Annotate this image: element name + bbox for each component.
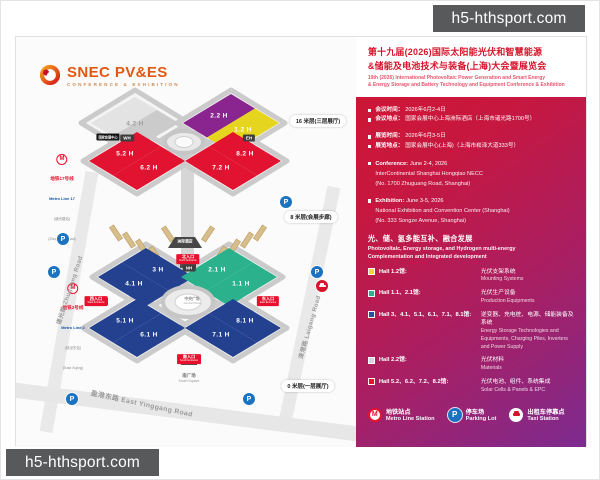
legend-desc-cn: 光伏电池、组件、系统集成 [481, 378, 551, 387]
entrance-en: South Entrance [180, 360, 198, 363]
taxi-icon [316, 280, 328, 292]
metro-icon: M [57, 154, 68, 165]
square-bullet-icon [368, 145, 372, 149]
exhibition-time-row: 展览时间： 2026年6月3-5日 [368, 132, 574, 142]
facility-taxi: 出租车停靠点 Taxi Station [509, 407, 564, 422]
east-entrance-tag: 东入口 East Entrance [257, 296, 279, 306]
legend-desc-en: Solar Cells & Panels & EPC [481, 387, 551, 395]
info-label: Conference: [375, 159, 408, 169]
parking-icon: P [448, 408, 462, 422]
info-address-line: (No. 1700 Zhuguang Road, Shanghai) [375, 179, 574, 189]
hall-label: 8.1 H [236, 318, 254, 325]
legend-label: Hall 1.2馆: [379, 268, 407, 276]
hall-label: 2.2 H [210, 113, 228, 120]
info-panel: 第十九届(2026)国际太阳能光伏和智慧能源 &储能及电池技术与装备(上海)大会… [356, 37, 586, 447]
parking-icon: P [311, 266, 323, 278]
legend-row-hall-5-2-etc: Hall 5.2、6.2、7.2、8.2馆: 光伏电池、组件、系统集成 Sola… [368, 378, 574, 394]
facility-en: Taxi Station [527, 416, 564, 422]
metro-station-cn: (诸光路站) [54, 217, 70, 221]
metro-line-en: Metro Line 2 [61, 325, 85, 330]
parking-icon: P [57, 233, 69, 245]
facility-cn: 地铁站点 [386, 407, 435, 416]
legend-desc-cn: 逆变器、充电桩、电源、储能装备及系统 [481, 311, 574, 328]
page: h5-hthsport.com h5-hthsport.com SNEC PV&… [0, 0, 600, 480]
hall-label: 6.2 H [140, 165, 158, 172]
necc-label: 国家会展中心 [96, 134, 119, 141]
hall-label: 3 H [152, 267, 163, 274]
hall-label: 1.2 H [234, 127, 252, 134]
south-square-en: South Square [179, 379, 200, 383]
hall-label: 6.1 H [140, 332, 158, 339]
info-value: June 3-5, 2026 [406, 196, 443, 206]
car-glyph [319, 285, 326, 288]
hall-label: 5.1 H [116, 318, 134, 325]
metro-icon: M [368, 408, 382, 422]
hall-label: 5.2 H [116, 151, 134, 158]
floor-label-0m: 0 米层(一层展厅) [281, 380, 334, 392]
info-value: 2026年6月3-5日 [405, 132, 445, 142]
theme-cn: 光、储、氢多能互补、融合发展 [368, 234, 574, 244]
legend-swatch-teal-icon [368, 290, 375, 297]
legend-desc-en: Mounting Systems [481, 276, 524, 284]
parking-icon: P [48, 266, 60, 278]
legend-swatch-blue-icon [368, 311, 375, 318]
legend-swatch-yellow-icon [368, 268, 375, 275]
north-hall-tag: NH [183, 265, 196, 272]
legend-desc-en: Energy Storage Technologies and Equipmen… [481, 328, 574, 351]
floor-label-16m: 16 米层(三层展厅) [290, 115, 346, 127]
north-entrance-tag: 北入口 North Entrance [176, 254, 199, 264]
taxi-icon [509, 408, 523, 422]
legend-swatch-light-icon [368, 357, 375, 364]
west-hall-tag: WH [120, 135, 134, 142]
facility-cn: 出租车停靠点 [527, 407, 564, 416]
legend-label: Hall 2.2馆: [379, 356, 407, 364]
exhibition-en-block: Exhibition: June 3-5, 2026 National Exhi… [368, 196, 574, 226]
facility-en: Parking Lot [466, 416, 497, 422]
info-value: 国家会展中心(上海)（上海市崧泽大道333号） [405, 142, 519, 152]
facility-cn: 停车场 [466, 407, 497, 416]
metro-line-en: Metro Line 17 [49, 196, 75, 201]
conference-time-row: 会议时间： 2026年6月2-4日 [368, 106, 574, 116]
logo-tagline: CONFERENCE & EXHIBITION [67, 82, 180, 87]
legend-label: Hall 5.2、6.2、7.2、8.2馆: [379, 378, 449, 386]
hall-label: 4.2 H [126, 121, 144, 128]
legend-desc-en: Production Equipments [481, 298, 535, 306]
square-bullet-icon [368, 135, 372, 139]
info-label: 展览地点： [375, 142, 403, 152]
info-label: 展览时间： [375, 132, 403, 142]
central-plaza-en: Central Plaza [184, 302, 201, 305]
info-value: 2026年6月2-4日 [405, 106, 445, 116]
south-entrance-tag: 南入口 South Entrance [177, 354, 201, 364]
poster-card: SNEC PV&ES CONFERENCE & EXHIBITION [15, 36, 587, 446]
legend-desc-cn: 光伏生产设备 [481, 289, 535, 298]
square-bullet-icon [368, 199, 372, 203]
hall-label: 2.1 H [208, 267, 226, 274]
metro-station-en: (East Xujing) [63, 366, 83, 370]
parking-icon: P [243, 393, 255, 405]
facility-metro: M 地铁站点 Metro Line Station [368, 407, 435, 422]
parking-icon: P [280, 196, 292, 208]
theme-en-line2: Complementation and Integrated developme… [368, 254, 574, 262]
event-title-cn-line1: 第十九届(2026)国际太阳能光伏和智慧能源 [368, 46, 574, 60]
floor-label-8m: 8 米层(会展步廊) [284, 211, 337, 223]
entrance-en: East Entrance [260, 302, 276, 305]
legend-row-hall-3-etc: Hall 3、4.1、5.1、6.1、7.1、8.1馆: 逆变器、充电桩、电源、… [368, 311, 574, 352]
conference-venue-row: 会议地点： 国家会展中心上海洲际酒店（上海市诸光路1700号） [368, 115, 574, 125]
event-title-en-line1: 19th (2026) International Photovoltaic P… [368, 75, 574, 82]
square-bullet-icon [368, 162, 372, 166]
info-label: 会议时间： [375, 106, 403, 116]
event-title-en-line2: & Energy Storage and Battery Technology … [368, 82, 574, 89]
square-bullet-icon [368, 118, 372, 122]
hall-label: 8.2 H [236, 151, 254, 158]
entrance-en: North Entrance [179, 260, 196, 263]
snec-logo: SNEC PV&ES CONFERENCE & EXHIBITION [38, 63, 180, 87]
watermark-bottom: h5-hthsport.com [6, 449, 159, 476]
east-hall-tag: EH [243, 135, 255, 142]
info-label: Exhibition: [375, 196, 404, 206]
theme-en-line1: Photovoltaic, Energy storage, and Hydrog… [368, 246, 574, 254]
entrance-en: West Entrance [88, 302, 105, 305]
hall-label: 4.1 H [125, 281, 143, 288]
metro-station-cn: (徐泾东站) [65, 346, 81, 350]
metro-line-cn: 地铁17号线 [50, 176, 74, 181]
hall-label: 1.1 H [232, 281, 250, 288]
conference-en-block: Conference: June 2-4, 2026 InterContinen… [368, 159, 574, 189]
south-square-label: 南广场 South Square [179, 373, 200, 383]
legend-row-hall-1-1-2-1: Hall 1.1、2.1馆: 光伏生产设备 Production Equipme… [368, 289, 574, 305]
info-value: 国家会展中心上海洲际酒店（上海市诸光路1700号） [405, 115, 535, 125]
hall-legend: Hall 1.2馆: 光伏支架系统 Mounting Systems Hall … [368, 268, 574, 395]
central-plaza-label: 中央广场 Central Plaza [184, 297, 201, 305]
legend-label: Hall 1.1、2.1馆: [379, 289, 421, 297]
info-label: 会议地点： [375, 115, 403, 125]
legend-label: Hall 3、4.1、5.1、6.1、7.1、8.1馆: [379, 311, 471, 319]
exhibition-venue-row: 展览地点： 国家会展中心(上海)（上海市崧泽大道333号） [368, 142, 574, 152]
legend-row-hall-2-2: Hall 2.2馆: 光伏材料 Materials [368, 356, 574, 372]
square-bullet-icon [368, 109, 372, 113]
facility-parking: P 停车场 Parking Lot [448, 407, 497, 422]
info-venue-line: National Exhibition and Convention Cente… [375, 206, 574, 216]
legend-row-hall-1-2: Hall 1.2馆: 光伏支架系统 Mounting Systems [368, 268, 574, 284]
theme-block: 光、储、氢多能互补、融合发展 Photovoltaic, Energy stor… [368, 234, 574, 262]
logo-name: SNEC PV&ES [67, 64, 180, 81]
car-glyph [513, 413, 520, 416]
parking-icon: P [66, 393, 78, 405]
legend-desc-cn: 光伏支架系统 [481, 268, 524, 277]
facility-en: Metro Line Station [386, 416, 435, 422]
event-title-cn-line2: &储能及电池技术与装备(上海)大会暨展览会 [368, 60, 574, 74]
hall-label: 7.1 H [212, 332, 230, 339]
legend-desc-cn: 光伏材料 [481, 356, 504, 365]
hall-label: 7.2 H [212, 165, 230, 172]
legend-desc-en: Materials [481, 365, 504, 373]
west-entrance-tag: 西入口 West Entrance [85, 296, 108, 306]
legend-swatch-red-icon [368, 378, 375, 385]
panel-header: 第十九届(2026)国际太阳能光伏和智慧能源 &储能及电池技术与装备(上海)大会… [356, 37, 586, 97]
info-address-line: (No. 333 Songze Avenue, Shanghai) [375, 216, 574, 226]
watermark-top: h5-hthsport.com [433, 5, 585, 32]
info-value: June 2-4, 2026 [410, 159, 447, 169]
hotel-label: 洲际酒店 [177, 240, 192, 245]
panel-body: 会议时间： 2026年6月2-4日 会议地点： 国家会展中心上海洲际酒店（上海市… [356, 97, 586, 423]
facilities-legend: M 地铁站点 Metro Line Station P 停车场 Parking … [368, 407, 574, 422]
venue-map: SNEC PV&ES CONFERENCE & EXHIBITION [16, 37, 356, 447]
info-venue-line: InterContinental Shanghai Hongqiao NECC [375, 169, 574, 179]
snec-logo-icon [38, 63, 62, 87]
